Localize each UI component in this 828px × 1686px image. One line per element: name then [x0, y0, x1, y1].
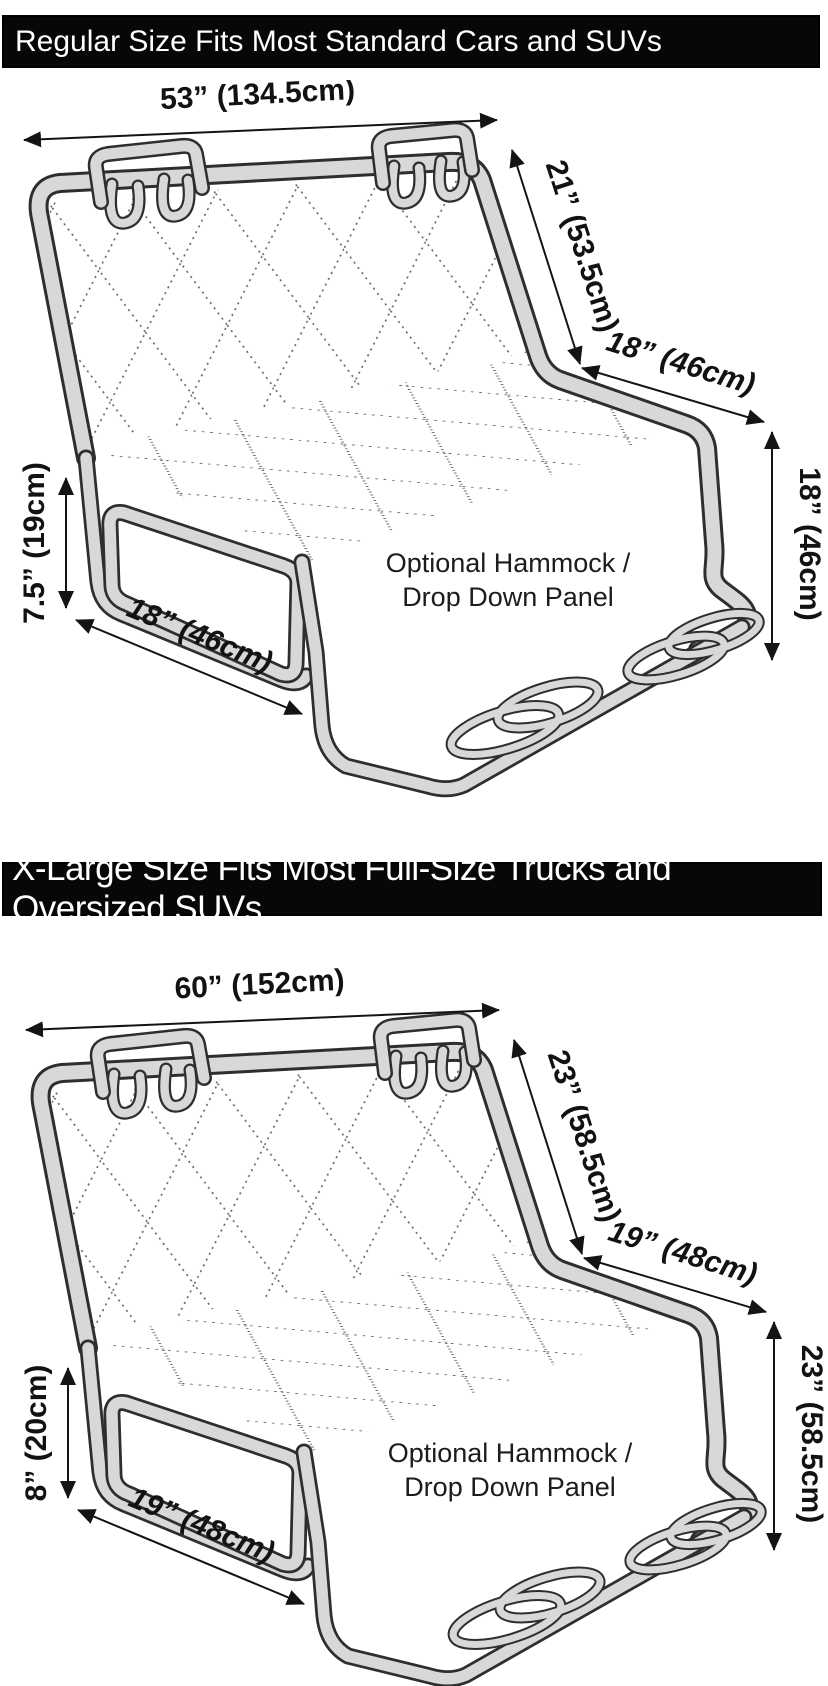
regular-dim-flap-width: 18” (46cm)	[122, 591, 277, 679]
xlarge-seat-cover-illustration: 60” (152cm) 23” (58.5cm) 19” (48cm) 23” …	[2, 964, 828, 1679]
xlarge-size-header-label: X-Large Size Fits Most Full-Size Trucks …	[12, 849, 820, 929]
regular-size-header: Regular Size Fits Most Standard Cars and…	[2, 15, 820, 68]
xlarge-size-diagram: 60” (152cm) 23” (58.5cm) 19” (48cm) 23” …	[0, 930, 828, 1686]
regular-size-diagram: 53” (134.5cm) 21” (53.5cm) 18” (46cm) 18…	[0, 80, 828, 810]
regular-dim-flap-height: 7.5” (19cm)	[18, 462, 51, 624]
xlarge-dim-drop-height: 23” (58.5cm)	[795, 1345, 828, 1523]
xlarge-dim-top-width: 60” (152cm)	[174, 964, 346, 1006]
regular-panel-note-line2: Drop Down Panel	[402, 582, 614, 612]
xlarge-dim-seat-depth: 19” (48cm)	[605, 1215, 761, 1291]
xlarge-dim-flap-width: 19” (48cm)	[124, 1481, 279, 1569]
xlarge-panel-note-line2: Drop Down Panel	[404, 1472, 616, 1502]
regular-dim-seat-depth: 18” (46cm)	[603, 325, 759, 401]
xlarge-panel-note-line1: Optional Hammock /	[388, 1438, 633, 1468]
regular-dim-backrest-height: 21” (53.5cm)	[539, 156, 626, 336]
regular-dim-top-width: 53” (134.5cm)	[159, 80, 356, 116]
xlarge-size-header: X-Large Size Fits Most Full-Size Trucks …	[2, 862, 822, 916]
regular-seat-cover-illustration: 53” (134.5cm) 21” (53.5cm) 18” (46cm) 18…	[0, 80, 828, 789]
regular-dim-drop-height: 18” (46cm)	[793, 467, 826, 620]
regular-size-header-label: Regular Size Fits Most Standard Cars and…	[15, 25, 662, 59]
xlarge-dim-backrest-height: 23” (58.5cm)	[541, 1046, 628, 1226]
regular-panel-note-line1: Optional Hammock /	[386, 548, 631, 578]
xlarge-dim-flap-height: 8” (20cm)	[20, 1365, 53, 1502]
